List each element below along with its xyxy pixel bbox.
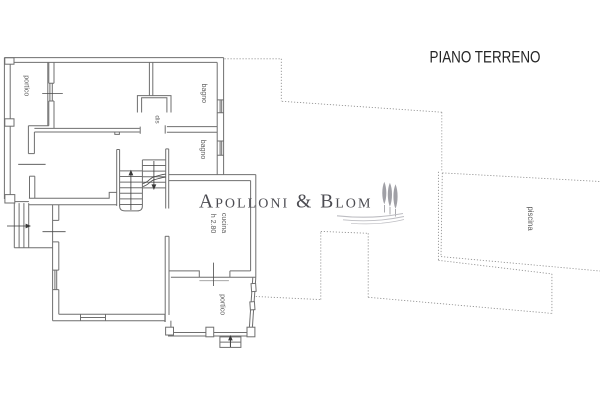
svg-text:piscina: piscina [526,206,535,231]
svg-text:h 2.80: h 2.80 [209,214,216,234]
svg-text:Apolloni & Blom: Apolloni & Blom [199,192,372,213]
svg-text:portico: portico [218,294,225,315]
svg-text:bagno: bagno [200,84,207,104]
svg-text:dis: dis [153,115,160,124]
svg-text:bagno: bagno [199,140,206,160]
svg-text:portico: portico [22,75,29,96]
svg-text:PIANO TERRENO: PIANO TERRENO [430,49,541,67]
svg-text:cucina: cucina [220,213,227,233]
